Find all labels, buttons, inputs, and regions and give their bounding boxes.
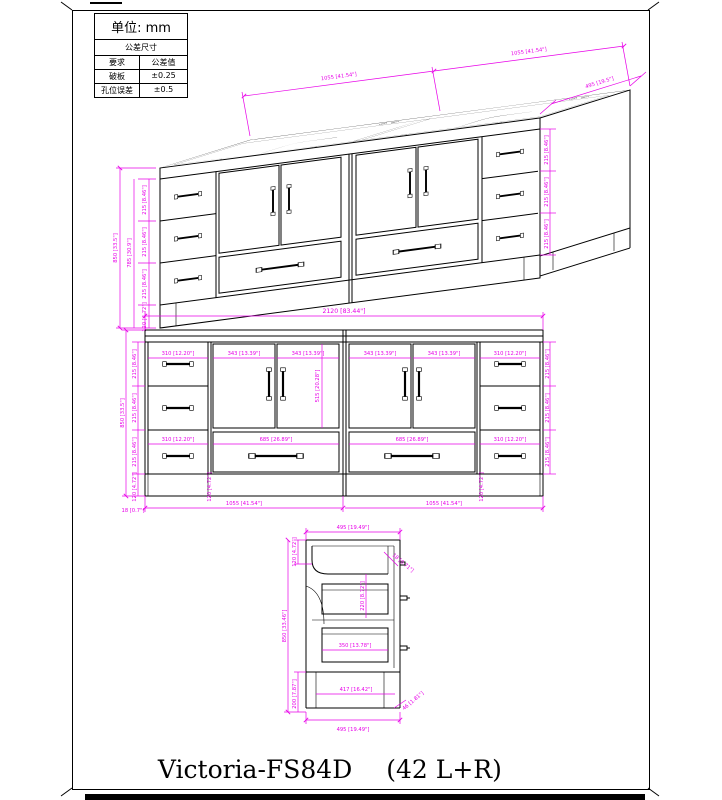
svg-text:120 [4.72"]: 120 [4.72"] — [207, 472, 213, 502]
svg-text:215 [8.46"]: 215 [8.46"] — [545, 349, 551, 379]
svg-text:215 [8.46"]: 215 [8.46"] — [132, 349, 138, 379]
side-cabinet — [306, 540, 410, 708]
svg-text:1055 [41.54"]: 1055 [41.54"] — [226, 501, 262, 507]
svg-text:200 [7.87"]: 200 [7.87"] — [292, 679, 298, 709]
svg-text:343 [13.39"]: 343 [13.39"] — [292, 351, 325, 357]
drawing-page: { "title": { "model": "Victoria-FS84D", … — [0, 0, 722, 800]
svg-text:310 [12.20"]: 310 [12.20"] — [494, 437, 527, 443]
drawing-title: Victoria-FS84D(42 L+R) — [142, 726, 502, 784]
svg-text:220 [8.72"]: 220 [8.72"] — [360, 581, 366, 611]
iso-side-face — [540, 90, 630, 276]
svg-text:685 [26.89"]: 685 [26.89"] — [396, 437, 429, 443]
svg-text:120 [4.72"]: 120 [4.72"] — [292, 537, 298, 567]
model-config: (42 L+R) — [386, 755, 502, 784]
svg-text:1055 [41.54"]: 1055 [41.54"] — [321, 72, 358, 83]
svg-text:18 [0.7"]: 18 [0.7"] — [122, 508, 145, 514]
svg-text:850 [33.46"]: 850 [33.46"] — [282, 610, 288, 643]
side-view: 495 [19.49"] 120 [4.72"] 850 [33.46"] 22… — [282, 525, 425, 733]
front-view: 2120 [83.44"] 310 [12.20"] 343 [13.39"] … — [120, 308, 556, 514]
svg-text:215 [8.46"]: 215 [8.46"] — [544, 177, 550, 207]
svg-text:310 [12.20"]: 310 [12.20"] — [494, 351, 527, 357]
svg-text:215 [8.46"]: 215 [8.46"] — [132, 437, 138, 467]
svg-text:310 [12.20"]: 310 [12.20"] — [162, 351, 195, 357]
front-cabinet — [145, 330, 543, 496]
svg-text:215 [8.46"]: 215 [8.46"] — [132, 393, 138, 423]
svg-text:2120 [83.44"]: 2120 [83.44"] — [322, 308, 365, 315]
svg-text:850 [33.5"]: 850 [33.5"] — [113, 233, 119, 263]
svg-text:120 [4.72"]: 120 [4.72"] — [479, 472, 485, 502]
iso-dimensions: 1055 [41.54"] 1055 [41.54"] 495 [19.5"] … — [113, 42, 646, 332]
svg-text:350 [13.78"]: 350 [13.78"] — [339, 643, 372, 649]
front-dimensions: 2120 [83.44"] 310 [12.20"] 343 [13.39"] … — [120, 308, 556, 514]
svg-text:215 [8.46"]: 215 [8.46"] — [544, 219, 550, 249]
corner-marks — [61, 2, 659, 796]
svg-text:515 [20.28"]: 515 [20.28"] — [315, 370, 321, 403]
iso-view: 1055 [41.54"] 1055 [41.54"] 495 [19.5"] … — [113, 42, 646, 332]
model-name: Victoria-FS84D — [158, 755, 352, 784]
iso-front-face — [160, 118, 540, 328]
svg-text:343 [13.39"]: 343 [13.39"] — [428, 351, 461, 357]
svg-text:417 [16.42"]: 417 [16.42"] — [340, 687, 373, 693]
svg-text:785 [30.9"]: 785 [30.9"] — [127, 238, 133, 268]
drawing-canvas: 1055 [41.54"] 1055 [41.54"] 495 [19.5"] … — [0, 0, 722, 800]
svg-text:215 [8.46"]: 215 [8.46"] — [544, 135, 550, 165]
svg-text:215 [8.46"]: 215 [8.46"] — [142, 185, 148, 215]
svg-text:495 [19.49"]: 495 [19.49"] — [337, 525, 370, 531]
svg-text:310 [12.20"]: 310 [12.20"] — [162, 437, 195, 443]
svg-text:46 [1.81"]: 46 [1.81"] — [401, 691, 425, 712]
svg-text:215 [8.46"]: 215 [8.46"] — [142, 269, 148, 299]
svg-text:850 [33.5"]: 850 [33.5"] — [120, 398, 126, 428]
svg-text:343 [13.39"]: 343 [13.39"] — [228, 351, 261, 357]
svg-text:343 [13.39"]: 343 [13.39"] — [364, 351, 397, 357]
svg-text:215 [8.46"]: 215 [8.46"] — [142, 227, 148, 257]
svg-text:215 [8.46"]: 215 [8.46"] — [545, 393, 551, 423]
svg-text:120 [4.72"]: 120 [4.72"] — [132, 472, 138, 502]
side-dimensions: 495 [19.49"] 120 [4.72"] 850 [33.46"] 22… — [282, 525, 425, 733]
svg-text:495 [19.5"]: 495 [19.5"] — [585, 76, 615, 90]
svg-text:215 [8.46"]: 215 [8.46"] — [545, 437, 551, 467]
svg-text:685 [26.89"]: 685 [26.89"] — [260, 437, 293, 443]
svg-text:1055 [41.54"]: 1055 [41.54"] — [426, 501, 462, 507]
svg-text:1055 [41.54"]: 1055 [41.54"] — [511, 47, 548, 58]
